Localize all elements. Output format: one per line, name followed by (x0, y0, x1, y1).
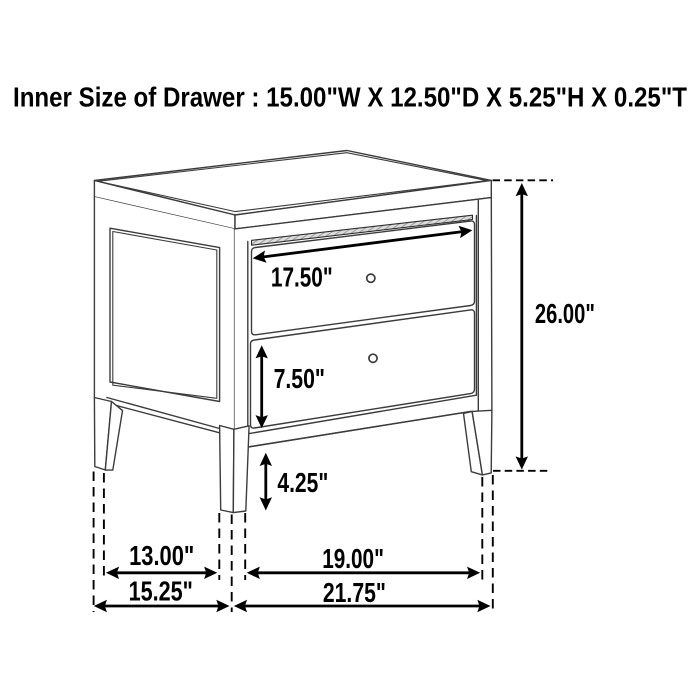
svg-text:4.25": 4.25" (277, 467, 328, 498)
svg-text:26.00": 26.00" (535, 298, 595, 329)
svg-text:7.50": 7.50" (274, 363, 325, 394)
svg-text:Inner Size of Drawer : 15.00"W: Inner Size of Drawer : 15.00"W X 12.50"D… (13, 82, 687, 113)
svg-text:21.75": 21.75" (323, 577, 386, 608)
svg-text:15.25": 15.25" (129, 576, 193, 607)
svg-text:19.00": 19.00" (322, 543, 384, 574)
svg-text:13.00": 13.00" (129, 540, 194, 571)
svg-text:17.50": 17.50" (271, 262, 333, 293)
